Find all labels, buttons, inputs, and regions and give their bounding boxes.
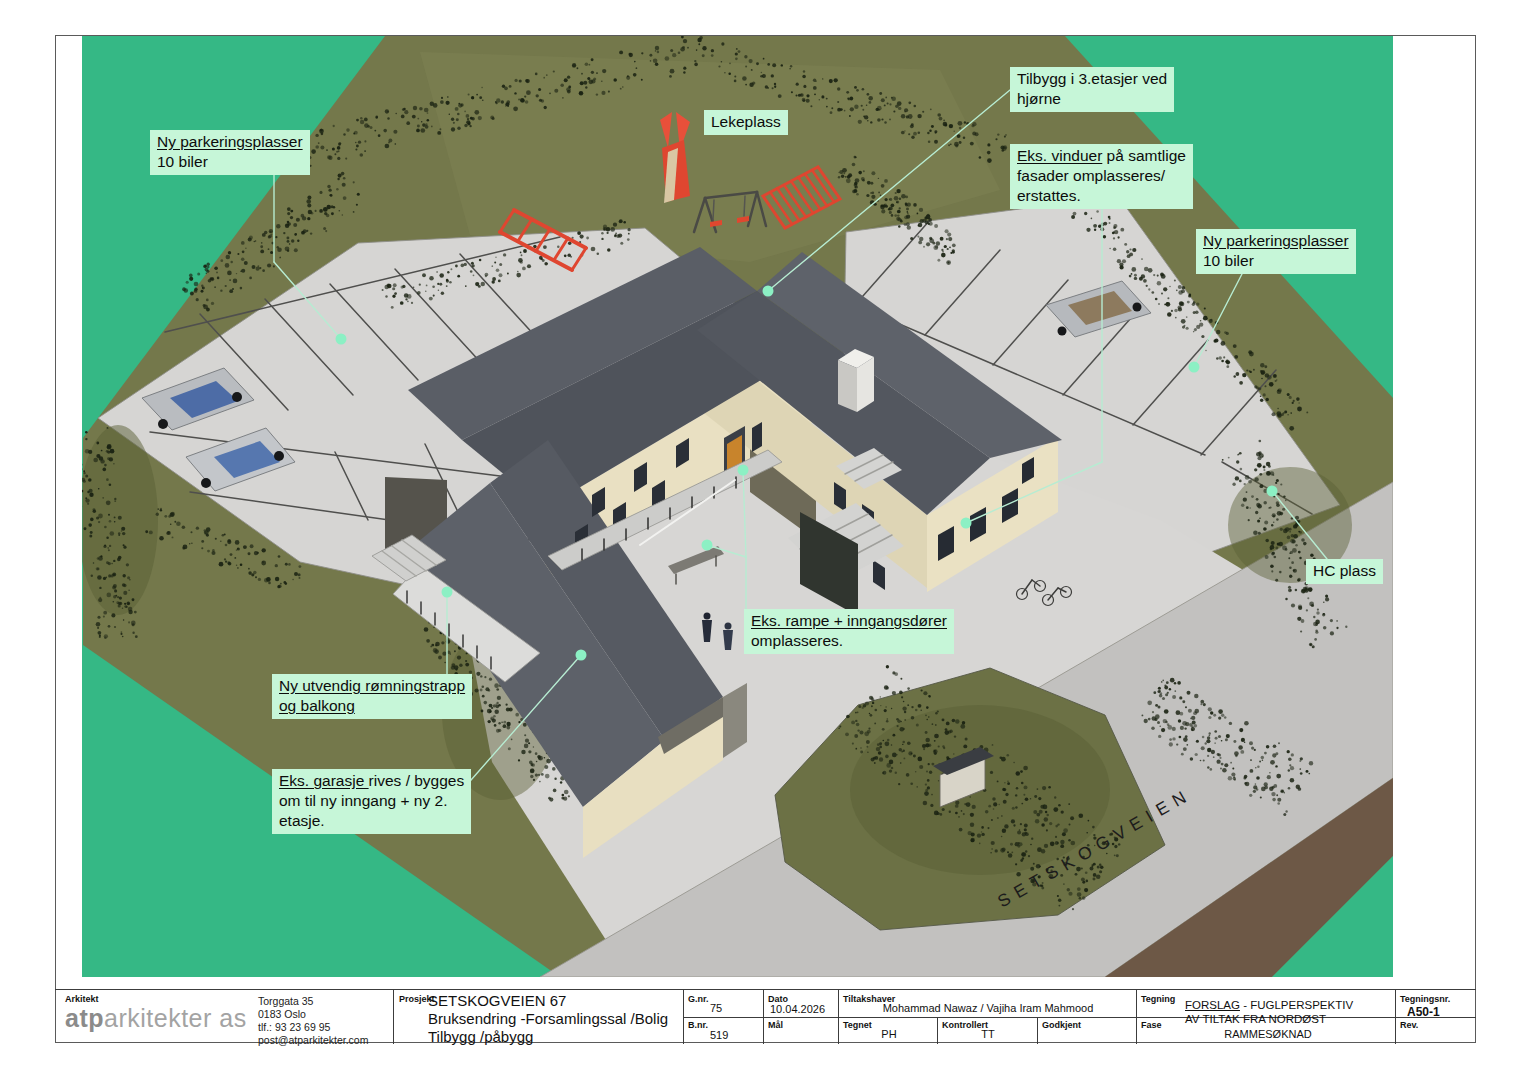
gnr-label: G.nr. [688, 994, 709, 1004]
tegning-label: Tegning [1141, 994, 1175, 1004]
architect-logo: atparkitekter as [65, 1004, 247, 1033]
arkitekt-label: Arkitekt [65, 994, 99, 1004]
sheet-border [55, 35, 1476, 1043]
divider [683, 1017, 1476, 1018]
architect-address: Torggata 35 0183 Oslo tlf.: 93 23 69 95 … [258, 995, 368, 1047]
maal-label: Mål [768, 1020, 783, 1030]
divider [937, 1017, 938, 1044]
tegning-value: FORSLAG - FUGLPERSPEKTIV AV TILTAK FRA N… [1185, 998, 1353, 1026]
dato-value: 10.04.2026 [770, 1003, 825, 1015]
drawing-sheet: SETSKOGVEIEN Ny parkeringsplasser10 bile… [0, 0, 1528, 1080]
tegnet-value: PH [843, 1028, 935, 1040]
bnr-label: B.nr. [688, 1020, 708, 1030]
rev-label: Rev. [1400, 1020, 1418, 1030]
divider [1037, 1017, 1038, 1044]
title-block: Arkitekt atparkitekter as Torggata 35 01… [55, 989, 1476, 1043]
divider [393, 990, 394, 1044]
tegningsnr-value: A50-1 [1407, 1005, 1440, 1019]
tegningsnr-label: Tegningsnr. [1400, 994, 1450, 1004]
bnr-value: 519 [710, 1029, 728, 1041]
gnr-value: 75 [710, 1002, 722, 1014]
tiltakshaver-value: Mohammad Nawaz / Vajiha Iram Mahmood [843, 1002, 1133, 1014]
project-title: SETSKOGVEIEN 67 Bruksendring -Forsamling… [428, 992, 668, 1046]
godkjent-label: Godkjent [1042, 1020, 1081, 1030]
fase-value: RAMMESØKNAD [1141, 1028, 1395, 1040]
kontrollert-value: TT [942, 1028, 1034, 1040]
